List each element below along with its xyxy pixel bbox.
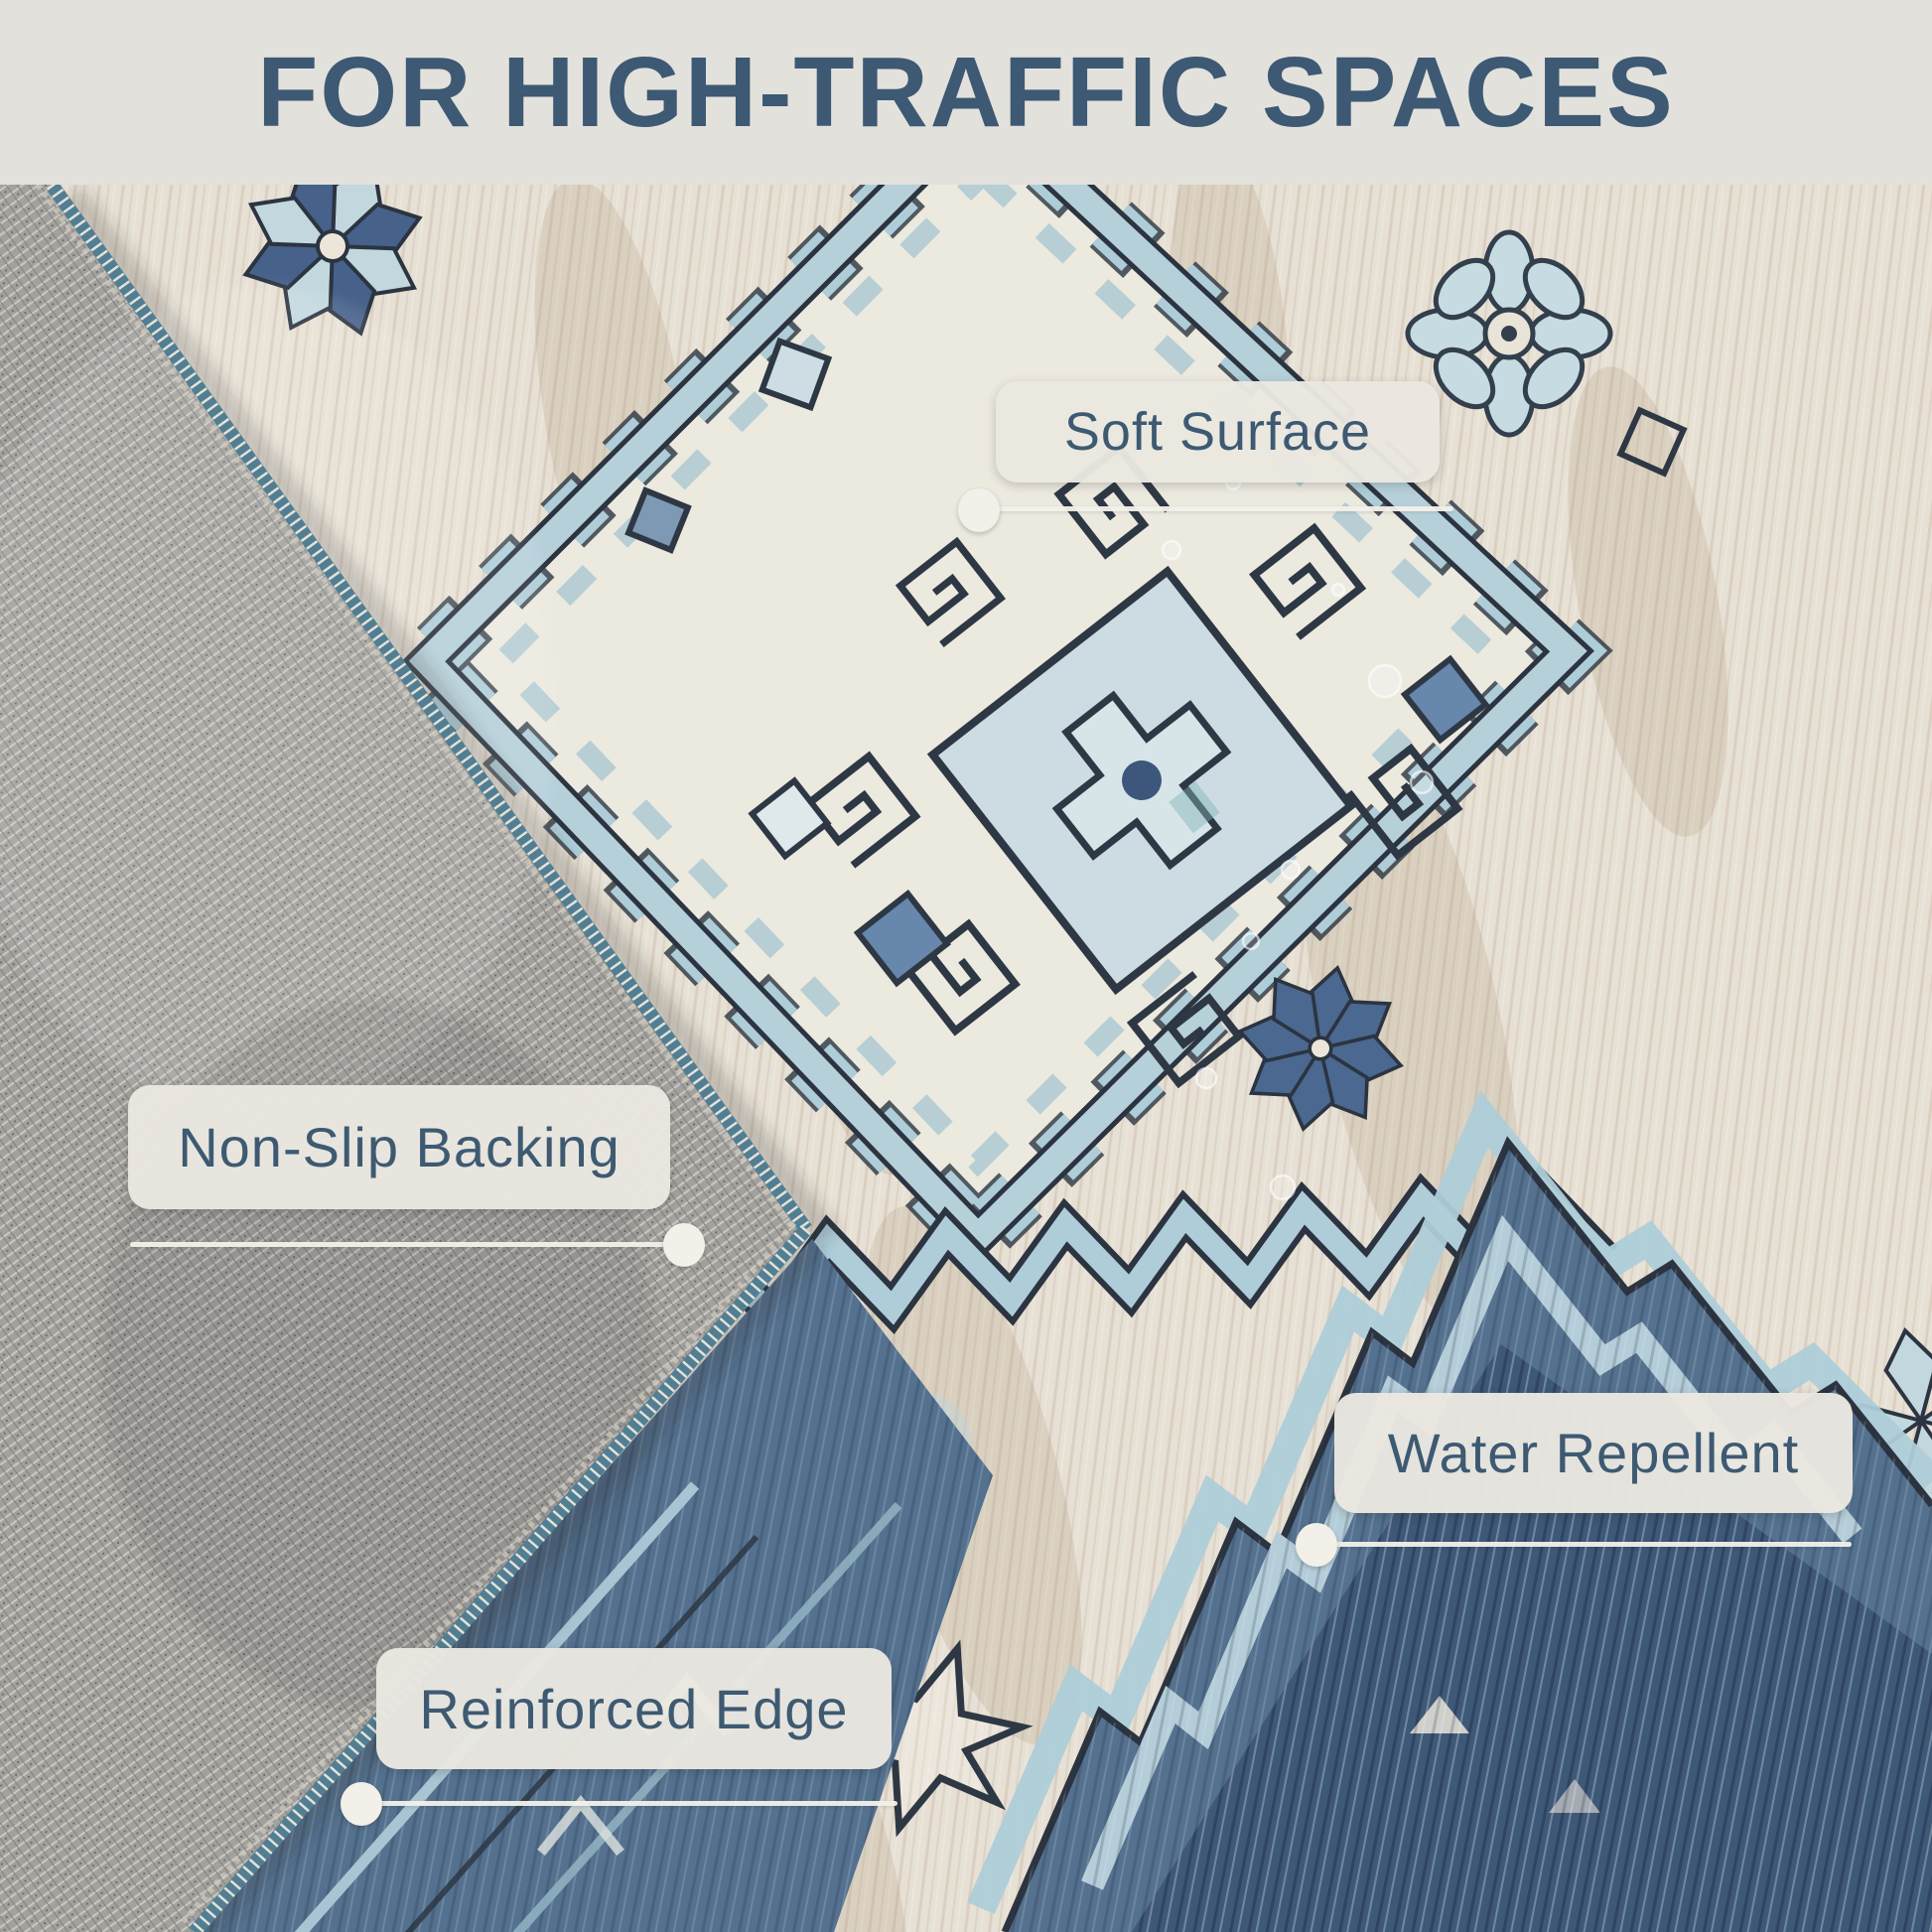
callout-non-slip-backing-dot (663, 1223, 705, 1267)
page-title: FOR HIGH-TRAFFIC SPACES (257, 36, 1674, 150)
callout-water-repellent: Water Repellent (1334, 1393, 1853, 1513)
callout-soft-surface: Soft Surface (996, 381, 1440, 483)
banner: FOR HIGH-TRAFFIC SPACES (0, 0, 1932, 185)
callout-soft-surface-line (997, 506, 1453, 511)
rug-photo (0, 185, 1932, 1932)
callout-non-slip-backing-label: Non-Slip Backing (178, 1115, 621, 1179)
callout-water-repellent-label: Water Repellent (1388, 1421, 1799, 1485)
callout-reinforced-edge-label: Reinforced Edge (419, 1677, 848, 1741)
callout-reinforced-edge: Reinforced Edge (376, 1648, 892, 1769)
callout-water-repellent-dot (1296, 1523, 1337, 1567)
callout-soft-surface-dot (958, 488, 1000, 532)
callout-non-slip-backing-line (130, 1242, 666, 1247)
callout-reinforced-edge-dot (341, 1782, 382, 1826)
callout-non-slip-backing: Non-Slip Backing (128, 1085, 670, 1209)
product-infographic: FOR HIGH-TRAFFIC SPACES Soft Surface Non… (0, 0, 1932, 1932)
callout-reinforced-edge-line (379, 1801, 897, 1806)
callout-water-repellent-line (1335, 1542, 1852, 1547)
callout-soft-surface-label: Soft Surface (1064, 401, 1371, 463)
